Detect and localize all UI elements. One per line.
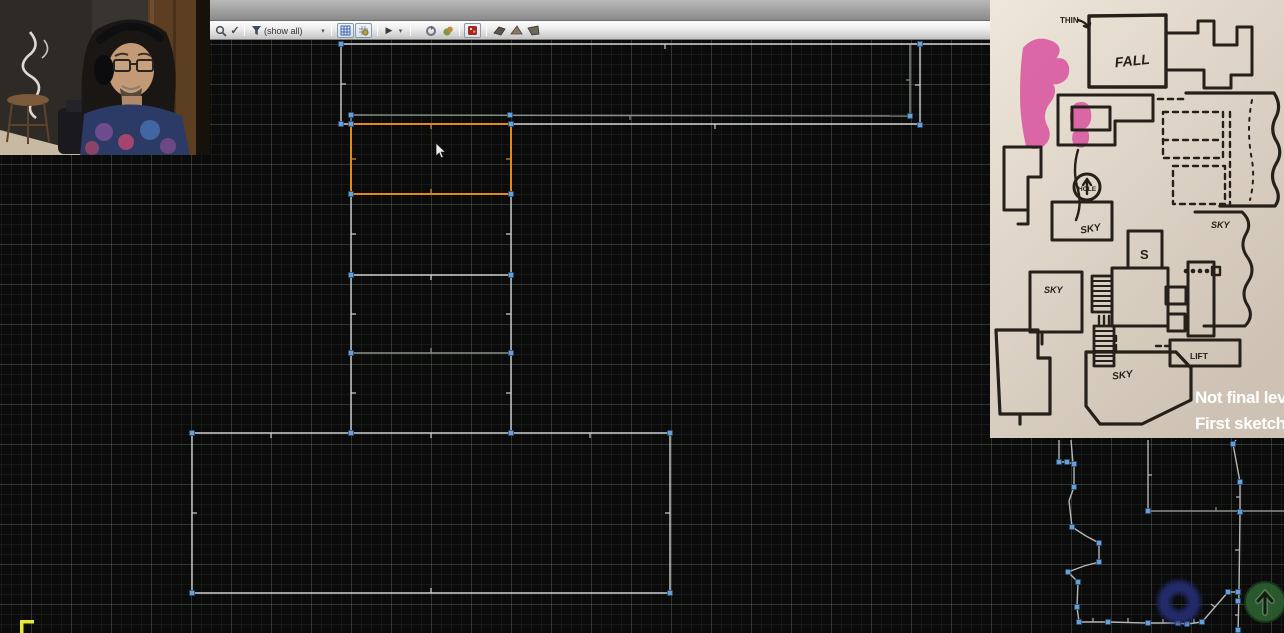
errors-warnings-button[interactable]	[464, 23, 481, 38]
filter-dropdown-arrow[interactable]: ▾	[318, 23, 328, 38]
app-window: ✓ (show all) ▾ ▶ ▾	[0, 0, 1284, 633]
sketch-label-sky-left: SKY	[1044, 285, 1064, 295]
shirt-pattern	[118, 134, 134, 150]
sketch-label-sky-right: SKY	[1211, 220, 1231, 230]
test-play-button[interactable]: ▶	[383, 23, 395, 38]
sketch-label-lift: LIFT	[1190, 351, 1209, 361]
glasses-left-lens	[114, 60, 130, 71]
filter-icon[interactable]	[250, 23, 262, 38]
webcam-overlay	[0, 0, 210, 155]
sketch-label-thin: THIN	[1060, 16, 1079, 25]
toolbar-separator	[244, 24, 245, 36]
webcam-dark-gap	[196, 0, 210, 155]
sketch-drawing: THIN FALL HOLE SKY S SKY SKY SKY LIFT No…	[990, 0, 1284, 438]
stool-seat	[7, 94, 49, 106]
filter-dropdown-value: (show all)	[264, 26, 303, 36]
toolbar-separator	[459, 24, 460, 36]
view-mode-wireframe-icon[interactable]	[492, 23, 507, 38]
script-editor-icon[interactable]	[441, 23, 455, 38]
shirt-pattern	[140, 120, 160, 140]
test-play-dropdown-arrow[interactable]: ▾	[396, 23, 405, 38]
snap-toggle-button[interactable]	[355, 23, 372, 38]
toolbar-separator	[486, 24, 487, 36]
caption-line-1: Not final leve	[1195, 388, 1284, 407]
shirt-pattern	[160, 138, 176, 154]
apply-check-icon[interactable]: ✓	[229, 23, 241, 38]
level-sketch-overlay: THIN FALL HOLE SKY S SKY SKY SKY LIFT No…	[990, 0, 1284, 438]
zoom-tool-icon[interactable]	[214, 23, 228, 38]
shirt-pattern	[95, 123, 113, 141]
headphones-earcup	[94, 55, 114, 85]
view-mode-brightness-icon[interactable]	[509, 23, 524, 38]
caption-line-2: First sketch.	[1195, 414, 1284, 433]
toolbar-separator	[377, 24, 378, 36]
shirt-pattern	[85, 141, 99, 155]
sketch-label-s: S	[1140, 247, 1149, 262]
toolbar-separator	[331, 24, 332, 36]
webcam-scene	[0, 0, 210, 155]
bag-pocket	[66, 100, 84, 112]
sketch-label-hole: HOLE	[1078, 186, 1097, 193]
glasses-right-lens	[137, 60, 153, 71]
view-mode-textured-icon[interactable]	[526, 23, 541, 38]
grid-toggle-button[interactable]	[337, 23, 354, 38]
toolbar-separator	[410, 24, 411, 36]
reload-resources-icon[interactable]	[424, 23, 438, 38]
